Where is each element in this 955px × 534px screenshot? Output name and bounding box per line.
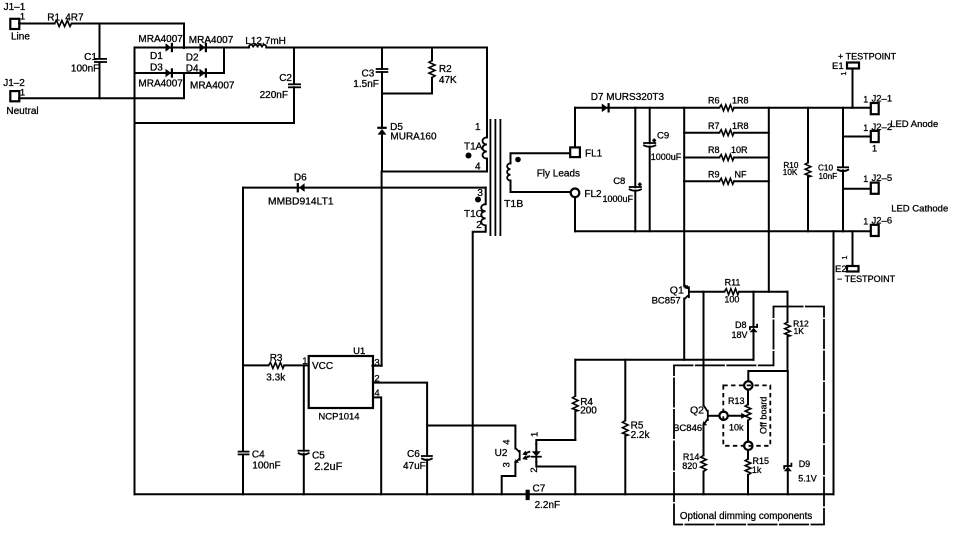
svg-text:1: 1 xyxy=(475,122,481,133)
svg-text:NF: NF xyxy=(735,169,747,179)
svg-text:4: 4 xyxy=(502,439,513,444)
svg-text:1: 1 xyxy=(872,144,877,154)
svg-text:200: 200 xyxy=(580,406,597,417)
svg-text:+ TESTPOINT: + TESTPOINT xyxy=(838,52,897,62)
svg-text:FL2: FL2 xyxy=(584,189,602,200)
svg-text:D1: D1 xyxy=(150,51,163,62)
svg-text:BC857: BC857 xyxy=(652,295,681,306)
svg-text:47uF: 47uF xyxy=(403,461,426,472)
svg-text:C9: C9 xyxy=(657,131,669,142)
svg-text:R7: R7 xyxy=(708,121,720,131)
svg-text:100: 100 xyxy=(724,295,739,305)
svg-text:R11: R11 xyxy=(725,278,741,288)
svg-text:MRA4007: MRA4007 xyxy=(138,34,183,45)
svg-text:D2: D2 xyxy=(186,52,199,63)
svg-text:R9: R9 xyxy=(708,169,720,179)
svg-text:D8: D8 xyxy=(735,320,747,330)
svg-text:1: 1 xyxy=(20,12,25,22)
svg-text:D7 MURS320T3: D7 MURS320T3 xyxy=(591,92,665,103)
svg-text:1000uF: 1000uF xyxy=(651,152,682,162)
svg-text:BC846: BC846 xyxy=(673,423,702,434)
svg-text:Q2: Q2 xyxy=(690,405,704,417)
svg-text:1: 1 xyxy=(842,256,849,260)
svg-text:10R: 10R xyxy=(731,145,748,155)
svg-text:MURA160: MURA160 xyxy=(390,132,437,143)
svg-text:− TESTPOINT: − TESTPOINT xyxy=(837,274,896,284)
svg-text:3: 3 xyxy=(502,462,513,467)
svg-text:220nF: 220nF xyxy=(260,90,288,101)
svg-text:D9: D9 xyxy=(799,459,811,469)
svg-text:1: 1 xyxy=(841,72,848,76)
svg-text:R1: R1 xyxy=(47,12,60,23)
svg-text:U1: U1 xyxy=(353,346,365,357)
svg-text:C8: C8 xyxy=(613,176,625,187)
svg-text:R2: R2 xyxy=(439,64,452,75)
svg-text:18V: 18V xyxy=(732,330,748,340)
svg-text:1: 1 xyxy=(530,432,541,437)
svg-text:MRA4007: MRA4007 xyxy=(138,78,183,89)
svg-text:Optional dimming components: Optional dimming components xyxy=(680,511,812,522)
svg-text:J2–6: J2–6 xyxy=(872,215,893,226)
svg-text:D3: D3 xyxy=(150,63,163,74)
svg-text:2.2k: 2.2k xyxy=(631,430,651,441)
svg-text:C1: C1 xyxy=(84,52,97,63)
svg-text:1K: 1K xyxy=(794,326,805,336)
svg-text:3: 3 xyxy=(374,357,379,368)
svg-text:10k: 10k xyxy=(729,423,744,433)
svg-text:C4: C4 xyxy=(252,449,265,460)
svg-text:10nF: 10nF xyxy=(819,172,838,181)
svg-text:E1: E1 xyxy=(832,61,844,72)
svg-text:T1C: T1C xyxy=(464,209,483,220)
svg-text:NCP1014: NCP1014 xyxy=(318,412,359,423)
svg-text:100nF: 100nF xyxy=(252,461,280,472)
svg-text:1000uF: 1000uF xyxy=(603,194,634,204)
svg-text:820: 820 xyxy=(682,461,697,471)
svg-text:MRA4007: MRA4007 xyxy=(189,35,234,46)
svg-text:1k: 1k xyxy=(752,465,762,475)
svg-text:4: 4 xyxy=(475,162,481,173)
svg-text:U2: U2 xyxy=(495,448,508,459)
svg-text:J2–2: J2–2 xyxy=(872,122,893,133)
svg-text:1R8: 1R8 xyxy=(732,121,749,131)
svg-text:Off board: Off board xyxy=(758,397,768,434)
svg-text:MRA4007: MRA4007 xyxy=(190,80,235,91)
svg-text:C2: C2 xyxy=(279,73,292,84)
svg-text:J2–1: J2–1 xyxy=(872,93,893,104)
svg-text:1R8: 1R8 xyxy=(732,96,749,106)
svg-text:R8: R8 xyxy=(708,145,720,155)
svg-text:100nF: 100nF xyxy=(71,64,99,75)
svg-text:Line: Line xyxy=(11,32,30,43)
svg-text:1: 1 xyxy=(863,95,868,105)
svg-text:C7: C7 xyxy=(533,484,546,495)
svg-text:Neutral: Neutral xyxy=(6,106,38,117)
svg-text:5.1V: 5.1V xyxy=(798,473,817,483)
svg-text:C5: C5 xyxy=(312,450,325,461)
svg-text:LED Anode: LED Anode xyxy=(890,119,938,130)
svg-text:R13: R13 xyxy=(728,396,745,406)
svg-text:2.2uF: 2.2uF xyxy=(314,461,342,473)
svg-text:47K: 47K xyxy=(439,75,457,86)
svg-text:J2–5: J2–5 xyxy=(872,173,893,184)
svg-text:2.2nF: 2.2nF xyxy=(535,500,561,511)
svg-text:2: 2 xyxy=(476,220,482,231)
svg-text:10K: 10K xyxy=(783,168,798,177)
svg-text:2: 2 xyxy=(529,467,540,472)
svg-text:T1A: T1A xyxy=(464,141,483,152)
svg-text:LED Cathode: LED Cathode xyxy=(891,203,948,214)
svg-text:1: 1 xyxy=(20,88,25,98)
svg-text:MMBD914LT1: MMBD914LT1 xyxy=(268,196,334,207)
svg-text:3.3k: 3.3k xyxy=(266,373,286,384)
svg-text:C6: C6 xyxy=(407,449,420,460)
svg-text:R3: R3 xyxy=(270,353,283,364)
svg-text:FL1: FL1 xyxy=(585,148,603,159)
svg-text:R6: R6 xyxy=(708,96,720,106)
svg-text:D4: D4 xyxy=(186,63,199,74)
svg-text:1: 1 xyxy=(863,123,868,133)
svg-text:4R7: 4R7 xyxy=(65,12,84,23)
svg-text:D6: D6 xyxy=(294,173,307,184)
svg-text:L12.7mH: L12.7mH xyxy=(245,36,286,47)
svg-text:T1B: T1B xyxy=(504,198,523,210)
svg-text:Fly Leads: Fly Leads xyxy=(537,168,580,179)
svg-text:VCC: VCC xyxy=(312,361,333,372)
svg-text:1.5nF: 1.5nF xyxy=(353,79,379,90)
svg-text:1: 1 xyxy=(863,216,868,226)
svg-text:1: 1 xyxy=(863,174,868,184)
